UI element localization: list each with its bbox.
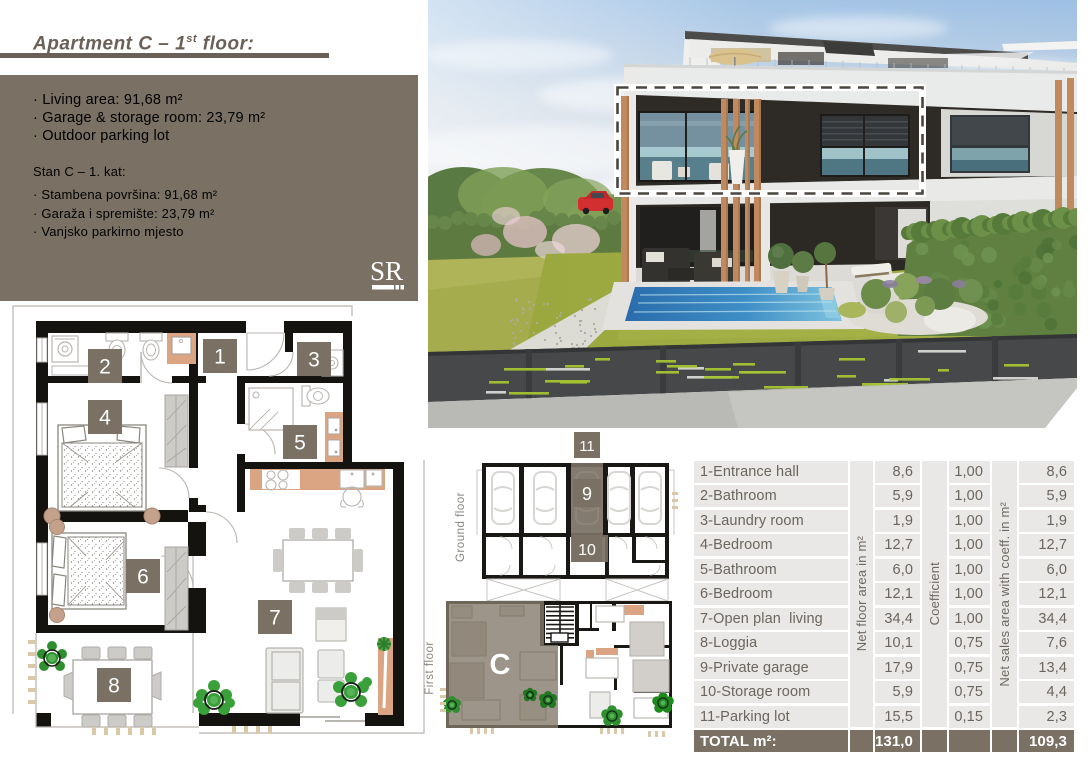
svg-text:6: 6	[137, 566, 149, 589]
svg-text:7: 7	[269, 607, 281, 630]
svg-text:5: 5	[294, 432, 306, 455]
svg-text:Ground floor: Ground floor	[455, 492, 467, 562]
svg-text:C: C	[490, 649, 511, 681]
svg-text:SR: SR	[370, 256, 403, 286]
svg-text:First floor: First floor	[424, 641, 436, 694]
svg-text:4: 4	[99, 407, 111, 430]
svg-text:10: 10	[578, 542, 596, 559]
svg-text:3: 3	[308, 349, 320, 372]
svg-text:8: 8	[108, 675, 120, 698]
svg-text:9: 9	[582, 484, 592, 504]
svg-text:2: 2	[99, 356, 111, 379]
svg-text:1: 1	[214, 346, 226, 369]
svg-text:11: 11	[579, 438, 595, 455]
